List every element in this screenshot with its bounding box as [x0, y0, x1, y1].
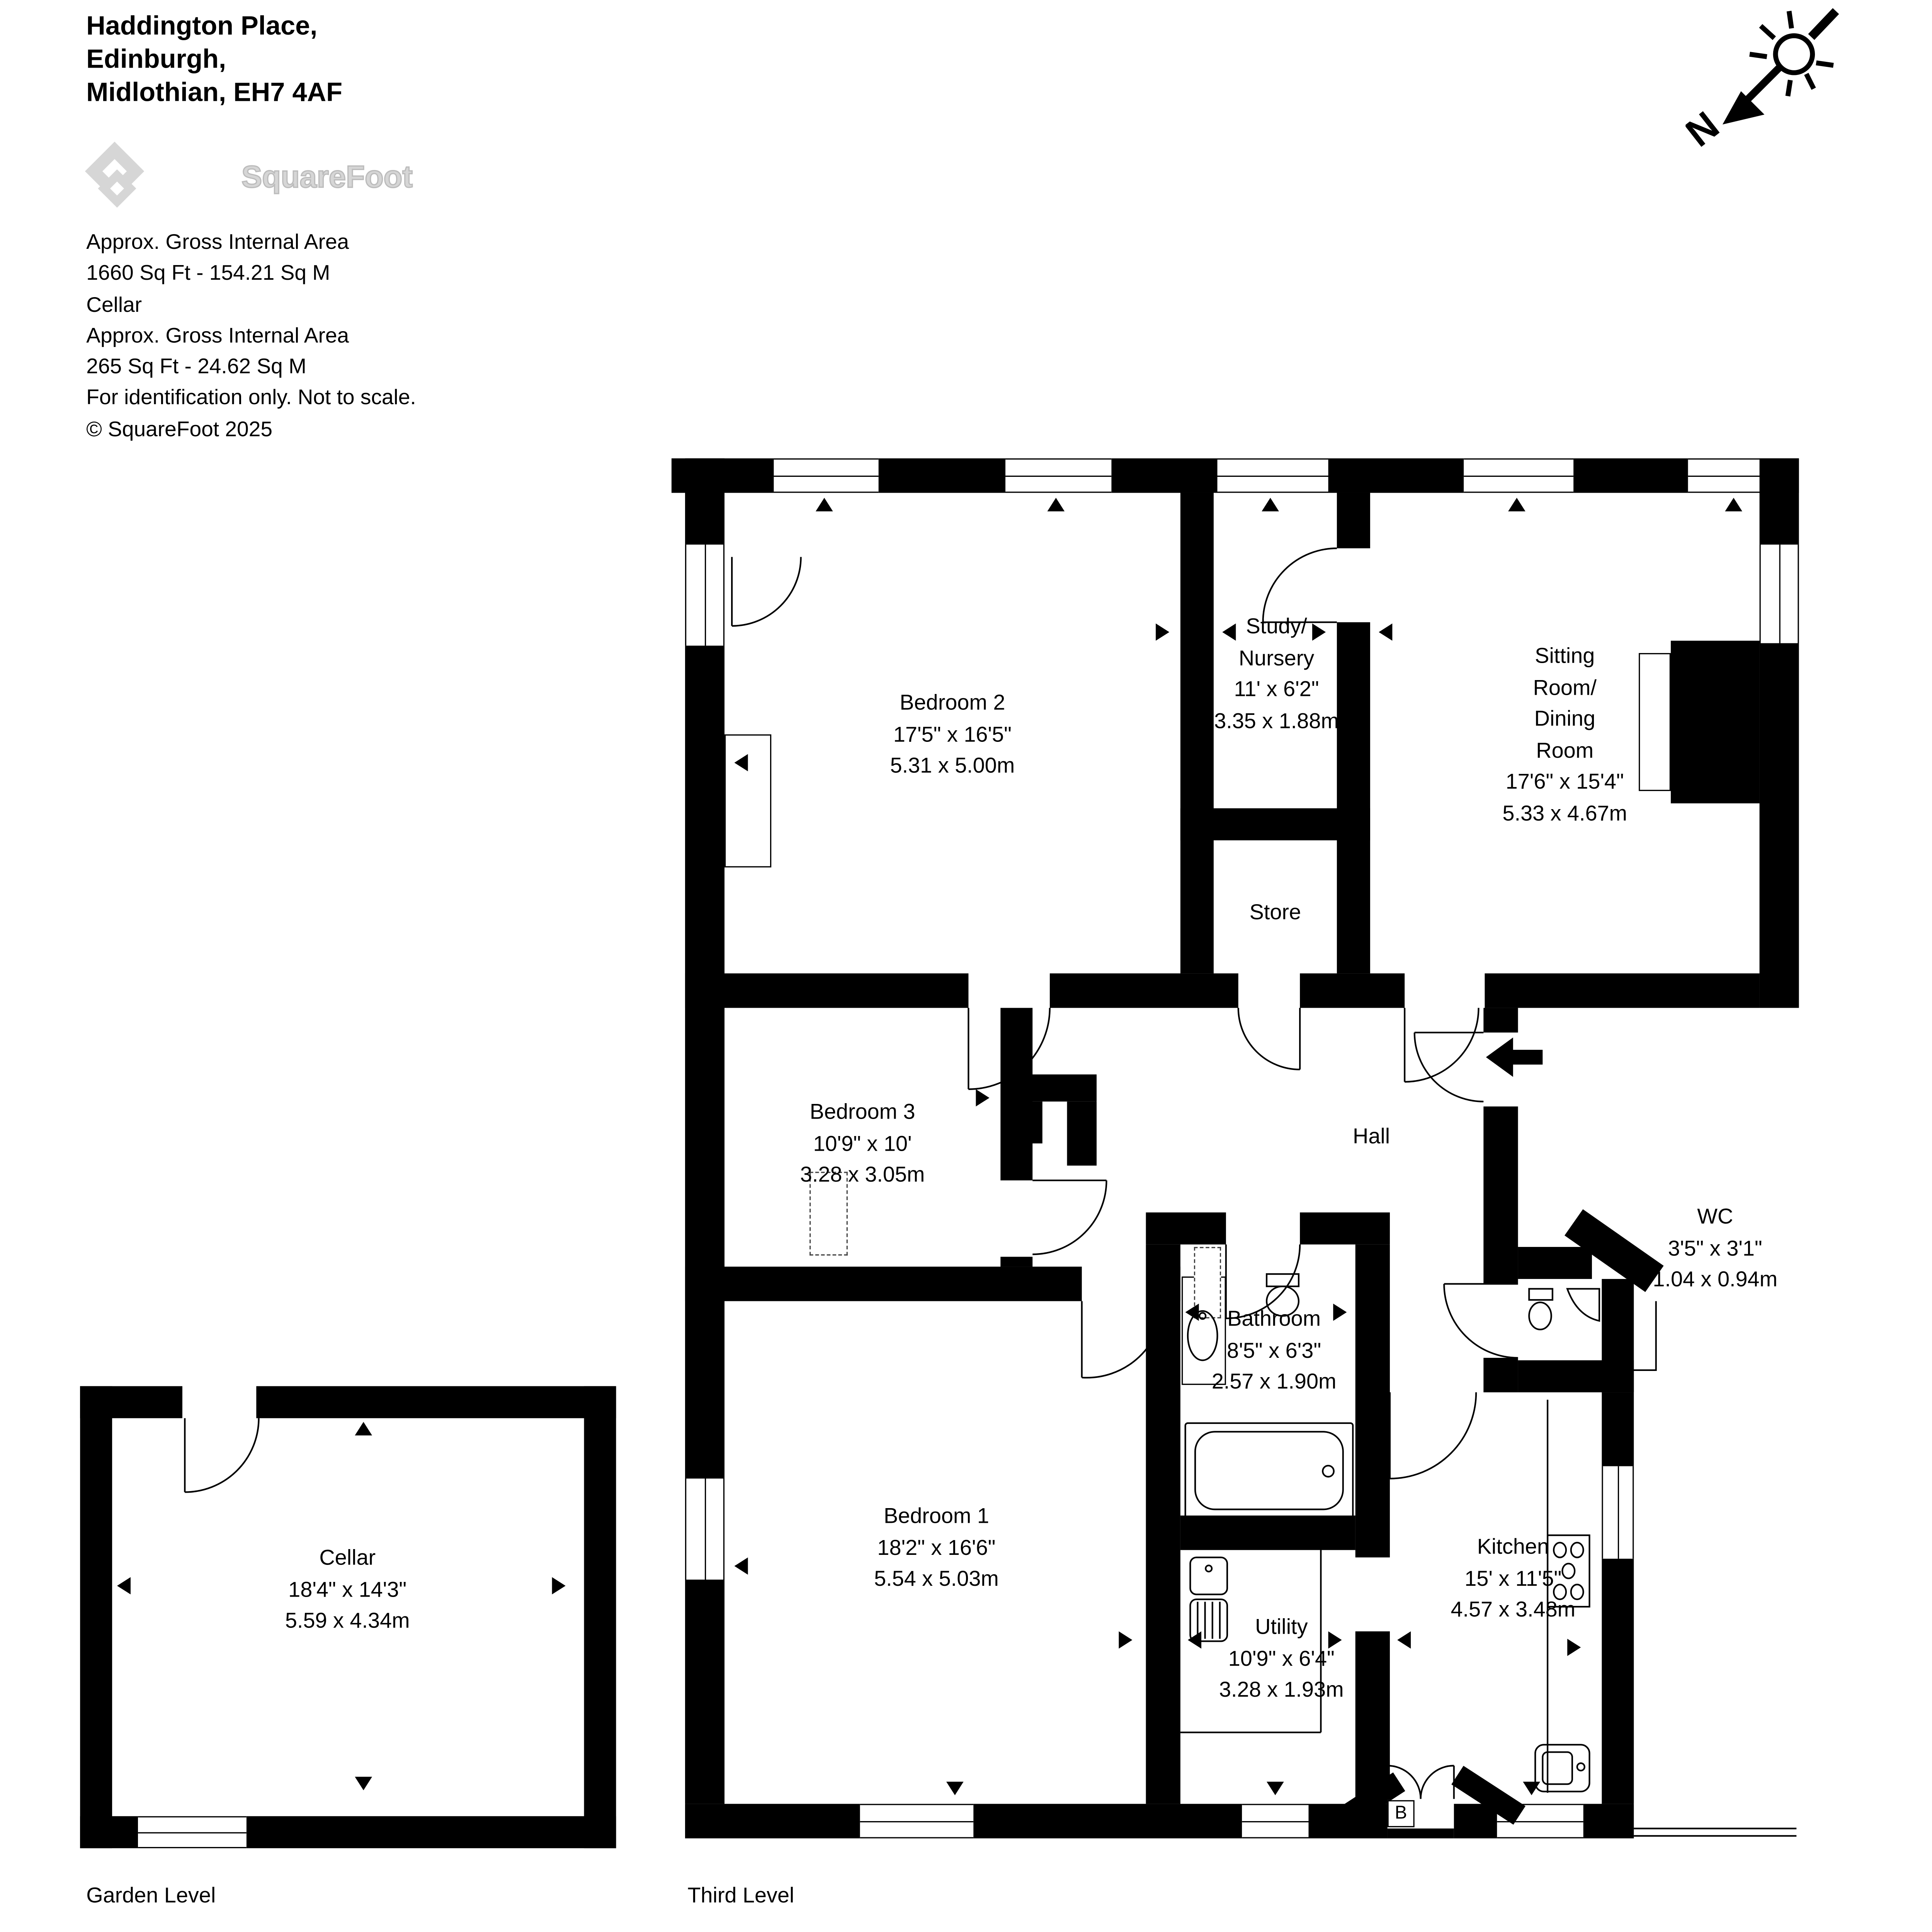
measure-tick	[1737, 752, 1751, 769]
wall-segment	[1483, 1358, 1518, 1392]
wc-fixtures	[1529, 1289, 1599, 1329]
boiler-badge: B	[1388, 1800, 1415, 1827]
area-line: 1660 Sq Ft - 154.21 Sq M	[86, 258, 416, 289]
wall-segment	[973, 1804, 1242, 1838]
measure-tick	[355, 1777, 372, 1790]
floor-label-garden: Garden Level	[86, 1883, 216, 1908]
sun-north-arrow-icon: N	[1685, 2, 1858, 163]
area-line: For identification only. Not to scale.	[86, 383, 416, 414]
wall-segment	[1067, 1102, 1097, 1166]
terrace-lines	[1634, 1828, 1796, 1836]
wall-segment	[1023, 1102, 1043, 1143]
room-label-study: Study/ Nursery 11' x 6'2" 3.35 x 1.88m	[1166, 611, 1388, 737]
wall-segment	[1005, 1075, 1097, 1102]
window	[1005, 458, 1111, 493]
wall-segment	[1000, 1257, 1032, 1267]
measure-tick	[355, 1422, 372, 1435]
wall-segment	[1483, 1008, 1518, 1032]
window	[774, 458, 879, 493]
measure-tick	[1119, 1631, 1132, 1649]
window	[1218, 458, 1328, 493]
measure-tick	[552, 1577, 566, 1595]
wall-segment	[685, 1267, 1082, 1301]
wall-segment	[1485, 973, 1759, 1008]
wall-segment	[685, 458, 724, 1804]
wall-segment	[1583, 1804, 1634, 1838]
wall-segment	[1050, 973, 1238, 1008]
address-line: Edinburgh,	[86, 43, 342, 77]
address-line: Haddington Place,	[86, 10, 342, 43]
window	[860, 1804, 973, 1838]
measure-tick	[735, 754, 748, 772]
measure-tick	[1267, 1782, 1284, 1795]
address-line: Midlothian, EH7 4AF	[86, 77, 342, 110]
area-summary: Approx. Gross Internal Area 1660 Sq Ft -…	[86, 227, 416, 445]
area-line: Approx. Gross Internal Area	[86, 320, 416, 352]
floor-label-third: Third Level	[687, 1883, 794, 1908]
room-label-bathroom: Bathroom 8'5" x 6'3" 2.57 x 1.90m	[1163, 1304, 1385, 1398]
window-recess	[685, 1479, 724, 1580]
room-label-bedroom3: Bedroom 3 10'9" x 10' 3.28 x 3.05m	[727, 1097, 998, 1191]
wall-segment	[1300, 973, 1405, 1008]
window	[1464, 458, 1573, 493]
wall-segment	[1111, 458, 1217, 493]
property-address: Haddington Place, Edinburgh, Midlothian,…	[86, 10, 342, 110]
measure-tick	[1047, 498, 1065, 511]
room-label-hall: Hall	[1298, 1121, 1446, 1153]
wall-segment	[1180, 1515, 1355, 1550]
wall-segment	[1602, 1392, 1634, 1466]
wall-segment	[1337, 493, 1370, 548]
measure-tick	[735, 1558, 748, 1575]
wall-segment	[1146, 1213, 1226, 1245]
window-recess	[685, 544, 724, 645]
measure-tick	[1397, 1631, 1411, 1649]
measure-tick	[1567, 1639, 1581, 1656]
wall-segment	[1328, 458, 1464, 493]
wall-segment	[80, 1386, 112, 1848]
window	[138, 1816, 247, 1848]
measure-tick	[1508, 498, 1526, 511]
wall-segment	[1355, 1245, 1390, 1558]
room-label-utility: Utility 10'9" x 6'4" 3.28 x 1.93m	[1170, 1612, 1392, 1706]
wall-segment	[584, 1386, 616, 1848]
floorplan-page: Haddington Place, Edinburgh, Midlothian,…	[0, 0, 1932, 1932]
room-label-wc: WC 3'5" x 3'1" 1.04 x 0.94m	[1629, 1201, 1801, 1296]
wall-segment	[1388, 1828, 1454, 1838]
wall-segment	[685, 973, 968, 1008]
wall-segment	[1573, 458, 1688, 493]
wall-segment	[80, 1816, 138, 1848]
wall-segment	[685, 1804, 860, 1838]
measure-tick	[1725, 498, 1742, 511]
wall-segment	[1483, 1107, 1518, 1284]
area-line: Cellar	[86, 289, 416, 320]
room-label-cellar: Cellar 18'4" x 14'3" 5.59 x 4.34m	[212, 1543, 483, 1637]
wall-segment	[879, 458, 1005, 493]
area-line: © SquareFoot 2025	[86, 414, 416, 445]
measure-tick	[1523, 1782, 1540, 1795]
room-label-store: Store	[1201, 897, 1349, 928]
room-label-kitchen: Kitchen 15' x 11'5" 4.57 x 3.48m	[1390, 1532, 1636, 1626]
wall-segment	[256, 1386, 616, 1418]
window-recess	[1760, 544, 1799, 643]
room-label-sitting: Sitting Room/ Dining Room 17'6" x 15'4" …	[1429, 641, 1701, 829]
logo-wordmark: SquareFoot	[241, 160, 413, 196]
area-line: 265 Sq Ft - 24.62 Sq M	[86, 351, 416, 383]
wall-segment	[1518, 1247, 1592, 1279]
measure-tick	[816, 498, 833, 511]
room-label-bedroom2: Bedroom 2 17'5" x 16'5" 5.31 x 5.00m	[804, 687, 1100, 782]
svg-text:N: N	[1685, 103, 1727, 155]
wall-segment	[1300, 1213, 1390, 1245]
measure-tick	[1262, 498, 1279, 511]
window	[1242, 1804, 1308, 1838]
wall-segment	[1518, 1360, 1634, 1392]
entrance-arrow-icon	[1486, 1037, 1543, 1077]
room-label-bedroom1: Bedroom 1 18'2" x 16'6" 5.54 x 5.03m	[801, 1501, 1072, 1595]
wall-segment	[247, 1816, 616, 1848]
measure-tick	[117, 1577, 131, 1595]
wall-segment	[1760, 458, 1799, 1008]
measure-tick	[946, 1782, 964, 1795]
area-line: Approx. Gross Internal Area	[86, 227, 416, 258]
